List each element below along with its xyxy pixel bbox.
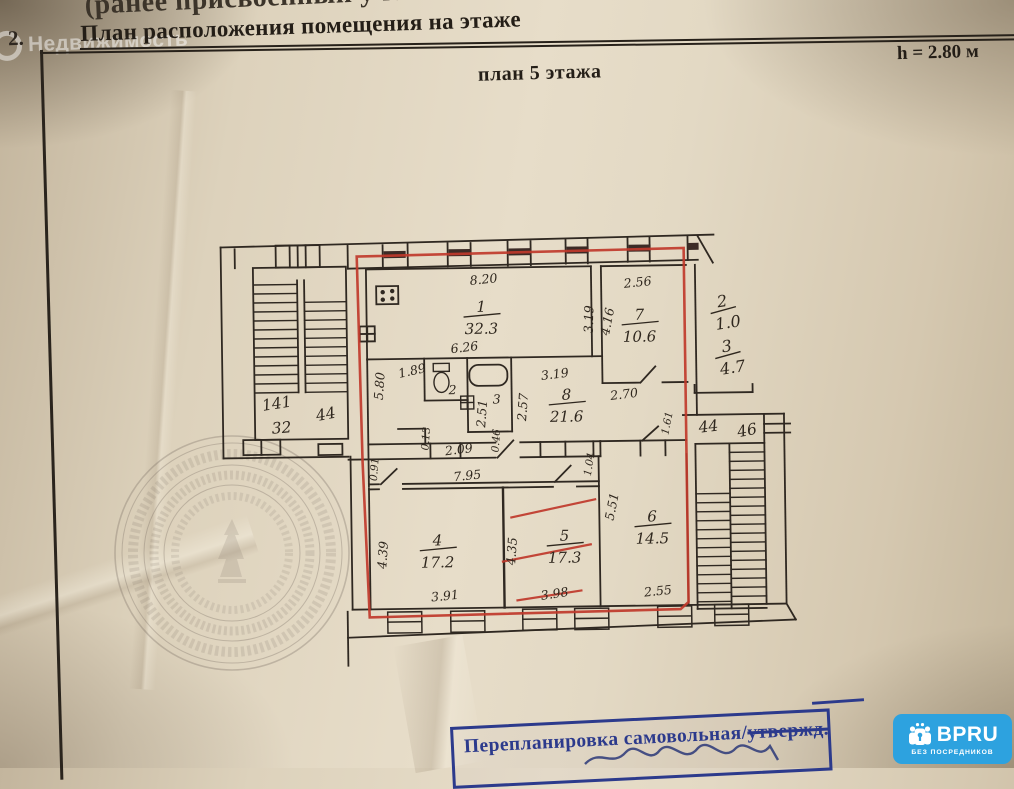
stamp-text-struck: утвержд.	[747, 719, 829, 744]
right-niche-walls	[683, 384, 793, 605]
photographed-floorplan-document: { "page": { "top_note": "(ранее присвоен…	[0, 0, 1014, 768]
stamp-strike-line	[812, 698, 864, 704]
room-5-label: 5 17.3	[547, 526, 585, 567]
dim: 2.09	[443, 440, 473, 458]
dim: 1.61	[659, 411, 675, 436]
dim: 3.91	[430, 587, 459, 605]
svg-text:6: 6	[647, 507, 657, 525]
dim: 5.80	[371, 372, 388, 401]
dim: 7.95	[453, 466, 482, 484]
svg-text:17.3: 17.3	[548, 548, 582, 566]
svg-text:21.6: 21.6	[549, 407, 584, 425]
dim: 0.91	[368, 457, 382, 481]
document-frame-left	[40, 50, 63, 780]
svg-text:2: 2	[715, 291, 729, 311]
stair-label: 32	[271, 418, 292, 438]
dim: 0.46	[489, 428, 503, 453]
top-wall-band	[220, 235, 713, 271]
dim: 6.26	[450, 338, 479, 356]
room-1-walls	[359, 266, 603, 386]
paper-crease	[0, 515, 259, 646]
outside-2-label: 2 1.0	[708, 289, 742, 334]
room-1-label: 1 32.3	[463, 298, 501, 339]
room-8-walls	[598, 265, 698, 456]
toilet-icon	[433, 363, 449, 392]
faint-round-stamp	[115, 436, 349, 670]
dim: 1.04	[582, 452, 598, 477]
svg-text:17.2: 17.2	[421, 553, 455, 571]
bpru-logo[interactable]: BPRU БЕЗ ПОСРЕДНИКОВ	[893, 714, 1012, 764]
plan-labels: 1 32.3 7 10.6 8 21.6 4 17.2 5 17.3 6 14.…	[259, 267, 761, 607]
stair-label: 46	[735, 420, 759, 442]
lower-rooms-walls	[351, 451, 787, 610]
svg-text:4: 4	[432, 531, 443, 549]
sink-icon	[461, 396, 474, 409]
stair-label: 141	[261, 393, 293, 415]
dim: 1.89	[397, 360, 428, 381]
outside-3-label: 3 4.7	[712, 334, 747, 379]
floor-plan-drawing: 1 32.3 7 10.6 8 21.6 4 17.2 5 17.3 6 14.…	[0, 0, 1014, 768]
bpru-brand: BPRU	[937, 723, 999, 747]
svg-text:1: 1	[476, 298, 486, 316]
wc-bath-walls	[424, 357, 512, 432]
dim: 3.19	[581, 305, 597, 333]
svg-text:32.3: 32.3	[465, 320, 499, 338]
stair-label: 44	[697, 417, 720, 437]
room-7-walls	[601, 265, 688, 383]
svg-text:7: 7	[634, 306, 644, 324]
corridor-walls	[347, 356, 601, 487]
photo-vignette	[0, 0, 1014, 768]
svg-text:4.7: 4.7	[718, 356, 748, 379]
dim: 4.39	[374, 541, 391, 571]
stove-icon	[380, 289, 394, 302]
svg-text:8: 8	[562, 386, 572, 404]
svg-text:14.5: 14.5	[636, 529, 670, 547]
room-6-label: 6 14.5	[634, 507, 672, 548]
room-4-label: 4 17.2	[420, 531, 458, 572]
stamp-emblem	[218, 519, 246, 583]
replanning-stamp: Перепланировка самовольная/утвержд.	[450, 708, 833, 788]
bpru-people-lock-icon	[907, 722, 933, 748]
dim: 3.98	[540, 584, 570, 603]
dim: 2.57	[514, 393, 531, 423]
left-outer-wall	[221, 246, 349, 459]
stair-label: 44	[313, 404, 337, 426]
dim: 0.13	[419, 426, 433, 451]
window-fills	[384, 243, 699, 258]
svg-text:3: 3	[720, 336, 733, 356]
dim: 4.35	[503, 537, 520, 567]
ceiling-height-note: h = 2.80 м	[897, 41, 979, 65]
room-7-label: 7 10.6	[621, 305, 659, 346]
svg-text:1.0: 1.0	[714, 311, 742, 334]
bottom-wall-band	[348, 603, 797, 665]
bpru-tagline: БЕЗ ПОСРЕДНИКОВ	[911, 749, 993, 756]
dim: 3.19	[540, 365, 569, 383]
dim: 8.20	[469, 270, 498, 288]
svg-text:10.6: 10.6	[623, 327, 657, 345]
section-number: 2.	[8, 26, 25, 52]
dim: 4.16	[597, 306, 617, 337]
dim: 2.56	[622, 273, 652, 291]
red-apartment-outline	[357, 248, 689, 618]
bath-number: 3	[493, 392, 501, 407]
dim: 2.55	[642, 582, 672, 600]
room-8-label: 8 21.6	[549, 385, 587, 426]
dim: 2.51	[473, 399, 490, 429]
svg-text:5: 5	[559, 527, 569, 545]
paper-crease	[129, 90, 197, 690]
plan-linework	[220, 234, 796, 668]
wc-number: 2	[447, 382, 456, 397]
bathtub-icon	[469, 364, 507, 386]
left-staircase	[253, 245, 349, 440]
right-staircase	[695, 443, 766, 609]
dim: 5.51	[602, 491, 622, 521]
dim: 2.70	[608, 385, 638, 403]
plan-title: план 5 этажа	[478, 60, 602, 86]
stamp-text: Перепланировка самовольная/	[463, 722, 747, 757]
